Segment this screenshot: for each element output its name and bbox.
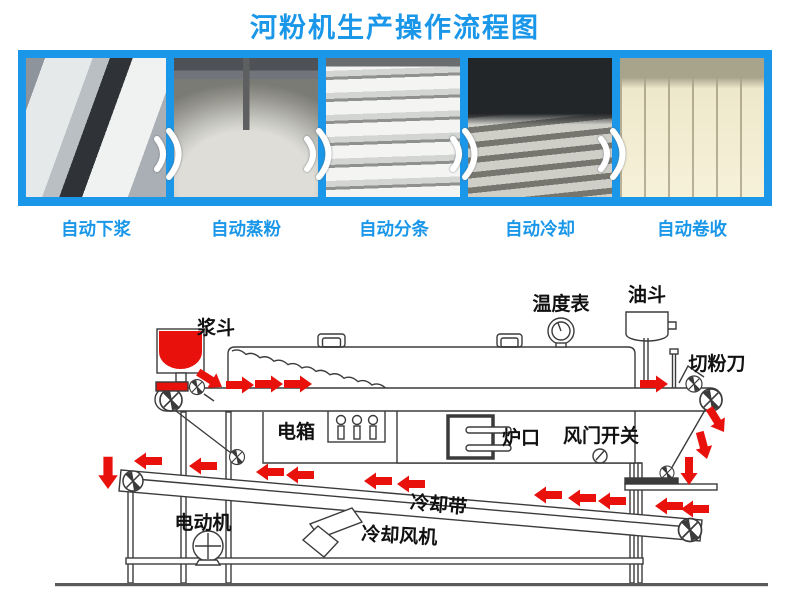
- red-arrow-icon: [256, 464, 284, 481]
- step-label-rolling: 自动卷收: [622, 216, 762, 241]
- white-arrow-icon: [446, 126, 488, 182]
- red-arrow-icon: [134, 453, 162, 470]
- photo-step-cutting: [326, 58, 460, 197]
- red-arrow-icon: [364, 473, 392, 490]
- label-electric-motor: 电动机: [174, 511, 231, 534]
- photo-step-cooling: [468, 58, 612, 197]
- red-arrow-icon: [681, 457, 698, 485]
- red-arrow-icon: [534, 487, 562, 504]
- lid-handle-icon: [318, 334, 522, 347]
- cooling-fan-icon: [303, 508, 362, 557]
- red-arrow-icon: [692, 430, 716, 461]
- step-label-slurry: 自动下浆: [26, 216, 166, 241]
- red-arrow-icon: [397, 476, 425, 493]
- page: { "header": { "title": "河粉机生产操作流程图" }, "…: [0, 0, 790, 615]
- label-oil-hopper: 油斗: [628, 284, 666, 306]
- step-label-cutting: 自动分条: [324, 216, 464, 241]
- white-arrow-icon: [300, 126, 342, 182]
- label-furnace-mouth: 炉口: [502, 426, 540, 449]
- label-noodle-cutter: 切粉刀: [688, 352, 745, 375]
- page-title: 河粉机生产操作流程图: [0, 6, 790, 45]
- machine-diagram: 浆斗 温度表 油斗 切粉刀 电箱 炉口 风门开关 冷却带 冷却风机 电动机: [0, 270, 790, 615]
- label-temperature-gauge: 温度表: [532, 292, 590, 315]
- red-arrow-icon: [655, 498, 683, 515]
- label-electric-box: 电箱: [277, 420, 315, 443]
- red-arrow-icon: [98, 457, 118, 489]
- step-label-steaming: 自动蒸粉: [176, 216, 316, 241]
- red-arrow-icon: [189, 458, 217, 475]
- photo-step-rolling: [620, 58, 764, 197]
- steam-conveyor-belt: [155, 388, 722, 411]
- label-damper-switch: 风门开关: [563, 424, 639, 447]
- step-label-cooling: 自动冷却: [470, 216, 610, 241]
- photo-step-slurry: [26, 58, 166, 197]
- temperature-gauge-icon: [548, 318, 574, 347]
- step-labels-row: 自动下浆 自动蒸粉 自动分条 自动冷却 自动卷收: [0, 216, 790, 246]
- white-arrow-icon: [150, 126, 192, 182]
- label-cooling-fan: 冷却风机: [361, 522, 438, 549]
- photo-strip: [18, 50, 772, 206]
- red-arrow-icon: [286, 467, 314, 484]
- ground-line: [55, 583, 768, 586]
- belt-roller-icon: [123, 471, 143, 491]
- red-arrow-icon: [598, 493, 626, 510]
- red-arrow-icon: [568, 490, 596, 507]
- white-arrow-icon: [594, 126, 636, 182]
- belt-roller-icon: [160, 389, 182, 411]
- photo-step-steaming: [174, 58, 318, 197]
- label-slurry-hopper: 浆斗: [197, 316, 235, 339]
- red-arrow-icon: [681, 501, 709, 518]
- guide-roller-icon: [230, 450, 245, 465]
- belt-roller-icon: [679, 519, 702, 542]
